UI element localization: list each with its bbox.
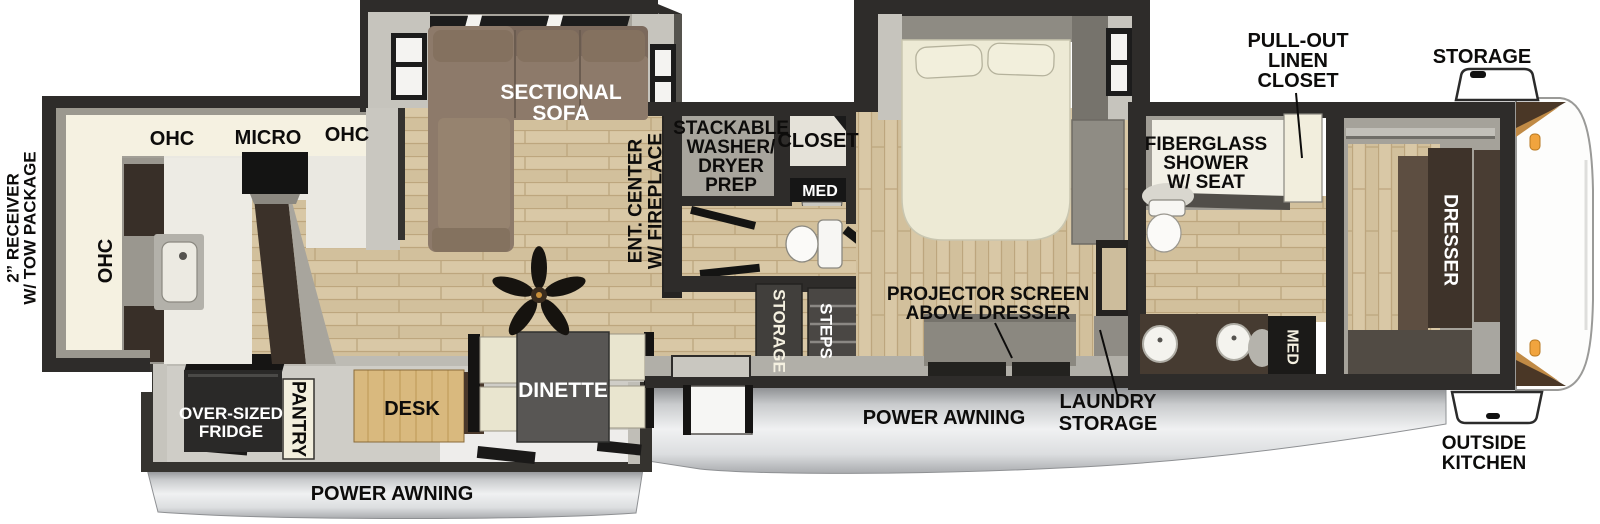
svg-text:OUTSIDE: OUTSIDE (1442, 433, 1526, 454)
svg-text:MED: MED (1284, 329, 1301, 365)
svg-text:KITCHEN: KITCHEN (1442, 453, 1526, 474)
svg-text:W/ TOW PACKAGE: W/ TOW PACKAGE (21, 151, 40, 304)
svg-text:MICRO: MICRO (235, 127, 302, 149)
svg-text:DESK: DESK (384, 398, 440, 420)
svg-text:OHC: OHC (325, 124, 369, 146)
svg-text:DRESSER: DRESSER (1440, 194, 1461, 286)
svg-text:CLOSET: CLOSET (777, 130, 858, 152)
svg-text:W/ FIREPLACE: W/ FIREPLACE (646, 133, 667, 269)
svg-text:LAUNDRY: LAUNDRY (1059, 391, 1157, 413)
svg-text:PROJECTOR SCREEN: PROJECTOR SCREEN (887, 284, 1089, 305)
svg-text:OHC: OHC (150, 128, 194, 150)
svg-text:W/ SEAT: W/ SEAT (1167, 172, 1245, 193)
svg-text:CLOSET: CLOSET (1257, 70, 1338, 92)
svg-text:OVER-SIZED: OVER-SIZED (179, 404, 283, 423)
svg-text:ABOVE DRESSER: ABOVE DRESSER (906, 303, 1071, 324)
svg-text:WASHER/: WASHER/ (687, 137, 776, 158)
svg-text:FIBERGLASS: FIBERGLASS (1145, 134, 1267, 155)
svg-text:SECTIONAL: SECTIONAL (500, 81, 622, 104)
svg-text:STEPS: STEPS (817, 303, 836, 359)
svg-text:PULL-OUT: PULL-OUT (1247, 30, 1348, 52)
svg-text:STORAGE: STORAGE (1059, 413, 1158, 435)
svg-text:FRIDGE: FRIDGE (199, 422, 263, 441)
svg-text:SOFA: SOFA (532, 102, 589, 125)
svg-text:OHC: OHC (95, 239, 117, 283)
svg-text:DINETTE: DINETTE (518, 379, 608, 402)
svg-text:STORAGE: STORAGE (1433, 46, 1532, 68)
svg-text:DRYER: DRYER (698, 156, 764, 177)
svg-text:MED: MED (802, 183, 838, 200)
svg-text:STORAGE: STORAGE (770, 289, 789, 373)
svg-text:PREP: PREP (705, 175, 757, 196)
svg-text:POWER AWNING: POWER AWNING (311, 483, 474, 505)
svg-text:STACKABLE: STACKABLE (673, 118, 789, 139)
svg-text:ENT. CENTER: ENT. CENTER (626, 138, 647, 263)
svg-text:SHOWER: SHOWER (1163, 153, 1249, 174)
svg-text:LINEN: LINEN (1268, 50, 1328, 72)
svg-text:POWER AWNING: POWER AWNING (863, 407, 1026, 429)
svg-text:PANTRY: PANTRY (288, 381, 309, 457)
